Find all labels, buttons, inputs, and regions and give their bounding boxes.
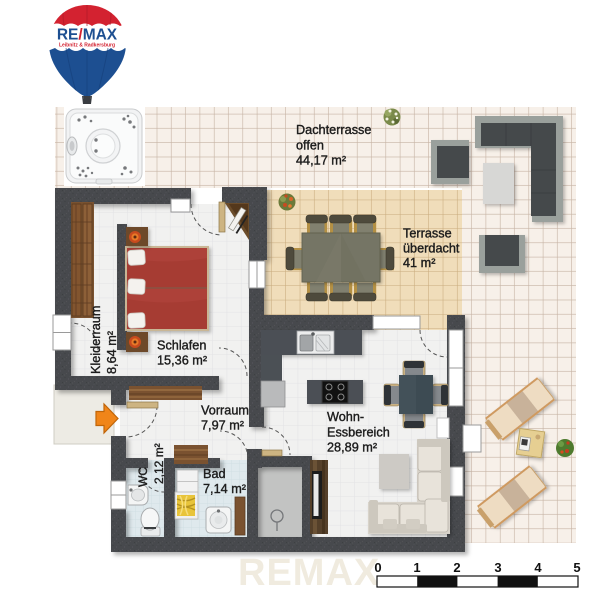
svg-text:3: 3 bbox=[494, 560, 501, 575]
svg-text:15,36 m²: 15,36 m² bbox=[157, 354, 207, 368]
svg-text:Schlafen: Schlafen bbox=[157, 339, 206, 353]
svg-text:RE/MAX: RE/MAX bbox=[57, 27, 118, 44]
svg-text:8,64 m²: 8,64 m² bbox=[105, 331, 119, 374]
svg-text:44,17 m²: 44,17 m² bbox=[296, 154, 346, 168]
svg-text:offen: offen bbox=[296, 139, 324, 153]
svg-text:4: 4 bbox=[534, 560, 542, 575]
svg-text:1: 1 bbox=[413, 560, 420, 575]
svg-text:überdacht: überdacht bbox=[403, 242, 460, 256]
svg-text:Wohn-: Wohn- bbox=[327, 410, 364, 424]
svg-text:Bad: Bad bbox=[203, 467, 226, 481]
svg-text:Essbereich: Essbereich bbox=[327, 426, 390, 440]
svg-text:Kleiderraum: Kleiderraum bbox=[89, 306, 103, 374]
svg-text:2,12 m²: 2,12 m² bbox=[152, 443, 166, 484]
svg-text:Terrasse: Terrasse bbox=[403, 227, 452, 241]
svg-text:2: 2 bbox=[453, 560, 460, 575]
svg-text:0: 0 bbox=[374, 560, 381, 575]
svg-text:Dachterrasse: Dachterrasse bbox=[296, 123, 371, 137]
svg-text:5: 5 bbox=[573, 560, 580, 575]
svg-text:28,89 m²: 28,89 m² bbox=[327, 441, 377, 455]
svg-text:WC: WC bbox=[136, 467, 150, 487]
svg-text:41 m²: 41 m² bbox=[403, 256, 435, 270]
svg-text:Vorraum: Vorraum bbox=[201, 404, 249, 418]
svg-text:7,14 m²: 7,14 m² bbox=[203, 482, 246, 496]
svg-text:REMAX: REMAX bbox=[238, 552, 380, 594]
svg-text:Leibnitz & Radkersburg: Leibnitz & Radkersburg bbox=[59, 43, 115, 49]
svg-text:7,97 m²: 7,97 m² bbox=[201, 419, 244, 433]
